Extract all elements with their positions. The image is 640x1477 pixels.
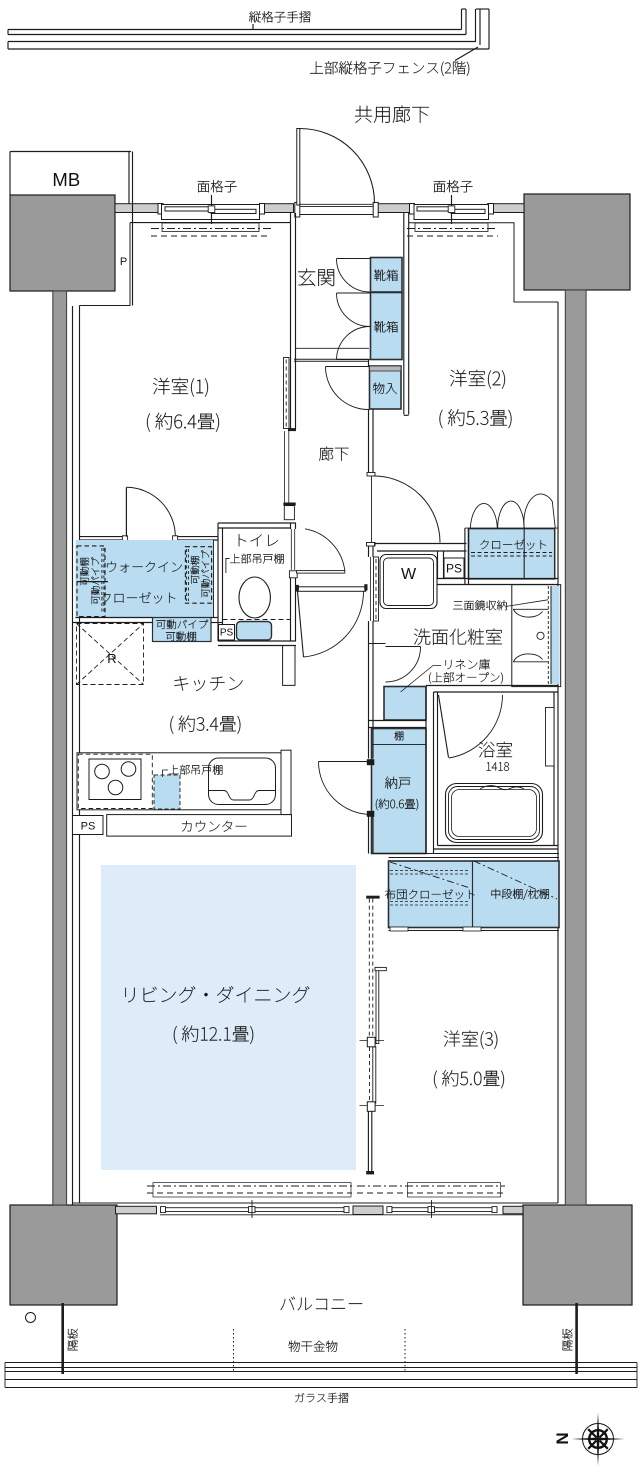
svg-text:R: R — [107, 651, 116, 666]
svg-text:PS: PS — [220, 628, 234, 639]
svg-text:MB: MB — [52, 169, 80, 190]
svg-text:PS: PS — [81, 820, 96, 832]
svg-text:N: N — [553, 1432, 572, 1444]
svg-text:PS: PS — [446, 562, 462, 576]
svg-text:P: P — [120, 256, 127, 268]
svg-text:W: W — [401, 566, 417, 583]
